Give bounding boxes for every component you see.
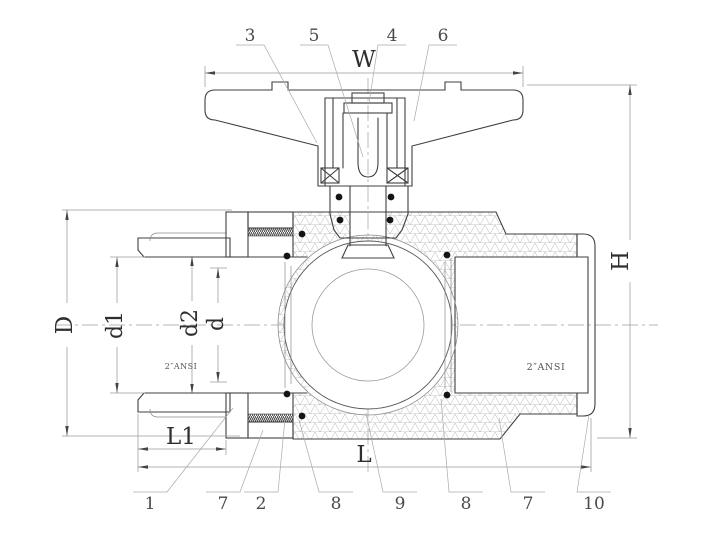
dim-label-h: H [608,251,634,271]
part-label-10: 10 [583,494,605,514]
handwheel-section [205,82,523,186]
ball-assembly [284,241,452,409]
part-label-5: 5 [309,26,320,46]
pipe-flange-bottom [226,393,248,438]
body-oring [299,231,306,238]
stem-oring [387,217,394,224]
body-oring [284,253,291,260]
dim-label-d-outer: D [52,316,78,334]
dim-l-arrow-right [581,465,591,468]
dim-w-arrow-left [205,71,215,74]
dim-l1-arrow-right [216,447,226,450]
union-nut-top [248,212,293,228]
dim-d-bore-arrow-bottom [216,372,219,382]
dim-label-d1: d1 [103,311,128,339]
port-size-right: 2″ANSI [527,362,566,373]
leader-part-7-left [206,430,263,492]
pipe-flange-top [226,212,248,257]
dim-h-arrow-bottom [628,428,631,438]
drawing-canvas: W H D d1 d2 d L1 [0,0,720,540]
dim-label-l1: L1 [166,424,196,450]
dim-d1-arrow-bottom [115,383,118,393]
seat-oring [444,252,451,259]
part-label-7-left: 7 [218,494,229,514]
part-label-7-right: 7 [523,494,534,514]
part-callouts-top: 3 5 4 6 [236,26,457,157]
dim-l1-arrow-left [138,447,148,450]
dim-d-bore-arrow-top [216,268,219,278]
port-size-left: 2″ANSI [165,362,198,371]
dimension-d2: d2 [178,256,203,394]
male-thread-bottom [138,393,230,412]
dim-label-l: L [356,442,371,468]
part-label-9: 9 [395,494,406,514]
dim-label-d-bore: d [204,317,229,331]
part-label-4: 4 [387,26,398,46]
body-oring [284,391,291,398]
dimension-h: H [527,85,637,438]
packing-nut-left [321,168,339,183]
part-label-1: 1 [145,494,156,514]
stem-sides [343,113,387,168]
dim-h-arrow-top [628,85,631,95]
leader-part-2 [244,419,285,492]
part-label-6: 6 [438,26,449,46]
handwheel [205,82,523,186]
part-label-8-left: 8 [331,494,342,514]
male-thread-top [138,238,230,257]
dim-d-outer-arrow-top [65,210,68,220]
dimension-w: W [205,47,523,87]
part-label-8-right: 8 [461,494,472,514]
dim-d-outer-arrow-bottom [65,426,68,436]
stem-oring [336,194,343,201]
stem-oring [388,194,395,201]
dimension-l1: L1 [138,414,226,472]
seat-oring [444,392,451,399]
union-nut-bottom [248,422,293,438]
part-label-3: 3 [245,26,256,46]
dim-label-w: W [352,47,376,73]
leader-part-10 [577,415,611,492]
dim-d1-arrow-top [115,257,118,267]
dimension-d-bore: d [204,268,229,382]
dim-l-arrow-left [138,465,148,468]
body-oring [299,413,306,420]
leader-part-6 [414,45,457,121]
dim-label-d2: d2 [178,309,203,337]
part-label-2: 2 [256,494,267,514]
dim-w-arrow-right [513,71,523,74]
ball-valve-technical-drawing: W H D d1 d2 d L1 [0,0,720,540]
nut-thread-top [248,228,293,236]
ball [284,241,452,409]
nut-thread-bottom [248,414,293,422]
stem-assembly [321,93,408,183]
stem-oring [337,217,344,224]
packing-nut-left-cross [321,168,339,183]
